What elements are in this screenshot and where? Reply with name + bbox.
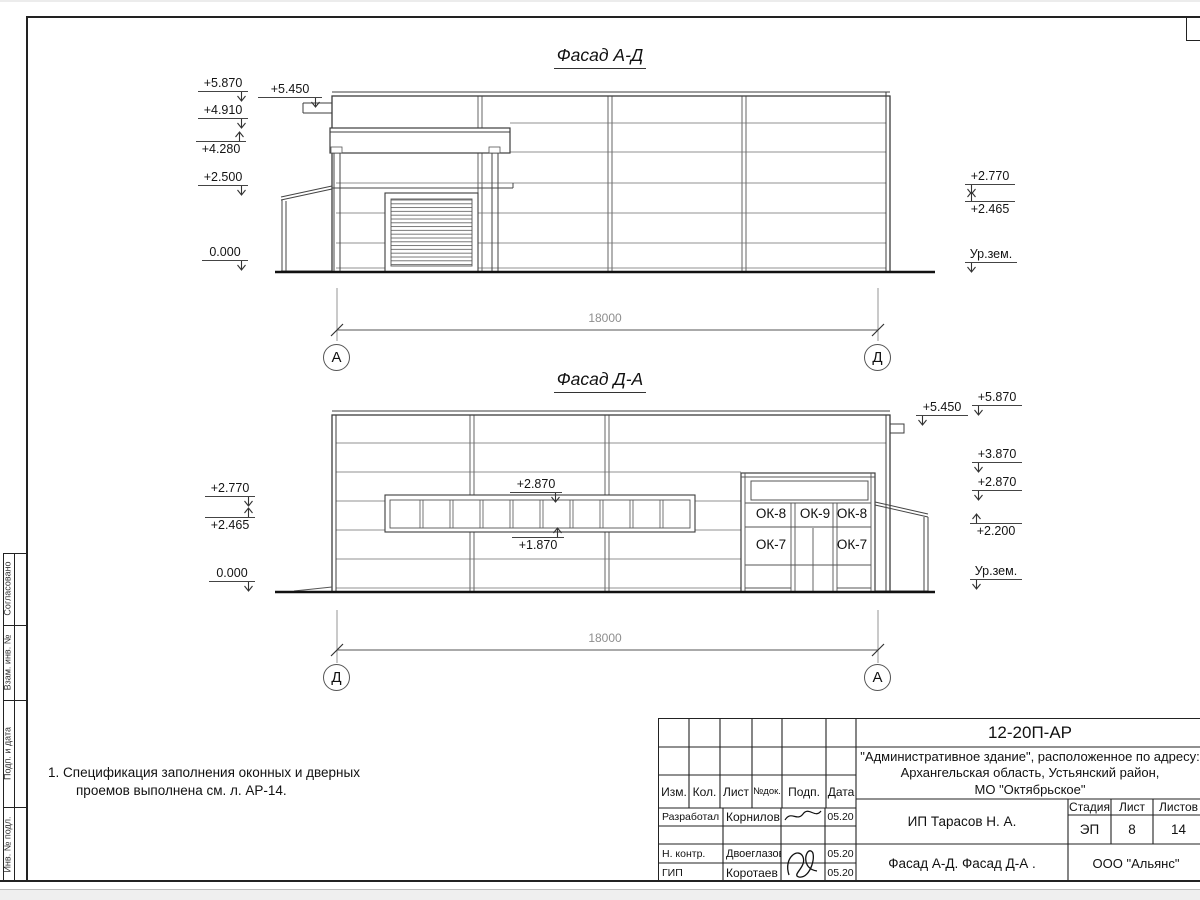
signature-scribble: [788, 851, 817, 877]
axis-circle-d: Д: [864, 344, 891, 371]
axis-circle-a: А: [323, 344, 350, 371]
elevation-arrow-down-icon: [236, 261, 247, 271]
ground-level-mark: Ур.зем.: [965, 248, 1017, 263]
elevation-mark: +1.870: [512, 537, 564, 552]
col-ndok: №док.: [752, 775, 782, 808]
titleblock: 12-20П-АР "Административное здание", рас…: [658, 718, 1200, 881]
elevation-arrow-down-icon: [973, 491, 984, 501]
elevation-mark: +5.870: [972, 391, 1022, 406]
facade2-title: Фасад Д-А: [500, 369, 700, 393]
window-label-ok7: ОК-7: [830, 535, 874, 555]
row-name: Коротаев: [723, 863, 781, 882]
col-list: Лист: [720, 775, 752, 808]
elevation-mark: +2.770: [205, 482, 255, 497]
side-strip-divider: [3, 807, 27, 808]
col-kol: Кол.: [689, 775, 720, 808]
project-address-line1: "Административное здание", расположенное…: [856, 748, 1200, 764]
elevation-arrow-down-icon: [236, 186, 247, 196]
col-podp: Подп.: [782, 775, 826, 808]
sheets-label: Листов: [1153, 799, 1200, 815]
elevation-arrow-up-icon: [552, 527, 563, 537]
sheet-number: 8: [1111, 815, 1153, 844]
elevation-mark: +2.770: [965, 170, 1015, 185]
row-name: Корнилов: [723, 808, 781, 826]
side-strip-divider: [3, 625, 27, 626]
elevation-arrow-down-icon: [971, 580, 982, 590]
elevation-arrow-down-icon: [236, 92, 247, 102]
note-line1: 1. Спецификация заполнения оконных и две…: [48, 764, 388, 782]
note-line2: проемов выполнена см. л. АР-14.: [76, 782, 388, 800]
elevation-arrow-down-icon: [973, 463, 984, 473]
row-date: 05.20: [825, 863, 856, 882]
axis-circle-a: А: [864, 664, 891, 691]
side-strip-line: [14, 553, 15, 881]
elevation-arrow-down-icon: [917, 416, 928, 426]
elevation-mark: +4.280: [196, 141, 246, 156]
client-name: ИП Тарасов Н. А.: [856, 799, 1068, 844]
corner-stamp-box-bottom: [1186, 40, 1200, 41]
sheet-note: 1. Спецификация заполнения оконных и две…: [48, 764, 388, 799]
signature-scribble: [785, 811, 821, 820]
elevation-arrow-down-icon: [550, 493, 561, 503]
ground-level-mark: Ур.зем.: [970, 565, 1022, 580]
row-role: Разработал: [659, 808, 723, 826]
company-name: ООО "Альянс": [1068, 844, 1200, 882]
side-strip-label: Инв. № подл.: [3, 810, 14, 880]
elevation-mark: +4.910: [198, 104, 248, 119]
sheet-label: Лист: [1111, 799, 1153, 815]
frame-left: [26, 16, 28, 882]
col-izm: Изм.: [659, 775, 689, 808]
elevation-mark: 0.000: [209, 567, 255, 582]
side-strip-label: Согласовано: [3, 554, 14, 624]
elevation-mark: +2.870: [972, 476, 1022, 491]
doc-number: 12-20П-АР: [856, 719, 1200, 747]
row-role: Н. контр.: [659, 844, 723, 863]
elevation-arrow-down-icon: [243, 497, 254, 507]
dimension-label: 18000: [560, 631, 650, 645]
window-label-ok7: ОК-7: [749, 535, 793, 555]
col-data: Дата: [826, 775, 856, 808]
side-strip-label: Подп. и дата: [3, 719, 14, 789]
elevation-mark: +5.870: [198, 77, 248, 92]
axis-circle-d: Д: [323, 664, 350, 691]
row-date: 05.20: [825, 844, 856, 863]
project-address-line2: Архангельская область, Устьянский район,: [856, 764, 1200, 780]
elevation-mark: +2.465: [965, 201, 1015, 216]
page-edge-bottom: [0, 889, 1200, 900]
side-strip-divider: [3, 700, 27, 701]
dimension-label: 18000: [560, 311, 650, 325]
elevation-arrow-down-icon: [310, 98, 321, 108]
row-name: Двоеглазов: [723, 844, 781, 863]
window-label-ok8: ОК-8: [830, 504, 874, 524]
sheets-total: 14: [1153, 815, 1200, 844]
corner-stamp-box-left: [1186, 16, 1187, 41]
stage-label: Стадия: [1068, 799, 1111, 815]
elevation-mark: +2.870: [510, 478, 562, 493]
elevation-arrow-up-icon: [966, 191, 977, 201]
window-label-ok8: ОК-8: [749, 504, 793, 524]
elevation-mark: +2.465: [205, 517, 255, 532]
facade1-title: Фасад А-Д: [500, 45, 700, 69]
elevation-mark: +3.870: [972, 448, 1022, 463]
page-edge-top: [0, 0, 1200, 2]
row-role: ГИП: [659, 863, 723, 882]
frame-top: [26, 16, 1200, 18]
elevation-arrow-down-icon: [973, 406, 984, 416]
elevation-arrow-up-icon: [243, 507, 254, 517]
elevation-arrow-up-icon: [234, 131, 245, 141]
row-date: 05.20: [825, 808, 856, 826]
elevation-mark: +5.450: [916, 401, 968, 416]
elevation-mark: +2.500: [198, 171, 248, 186]
elevation-mark: +2.200: [970, 523, 1022, 538]
elevation-mark: 0.000: [202, 246, 248, 261]
elevation-mark: +5.450: [258, 83, 322, 98]
side-strip-label: Взам. инв. №: [3, 628, 14, 698]
stage-value: ЭП: [1068, 815, 1111, 844]
drawing-sheet: Согласовано Взам. инв. № Подп. и дата Ин…: [0, 0, 1200, 900]
project-address-line3: МО "Октябрьское": [856, 780, 1200, 798]
elevation-arrow-down-icon: [243, 582, 254, 592]
elevation-arrow-up-icon: [971, 513, 982, 523]
sheet-title: Фасад А-Д. Фасад Д-А .: [856, 844, 1068, 882]
elevation-arrow-down-icon: [966, 263, 977, 273]
elevation-arrow-down-icon: [236, 119, 247, 129]
